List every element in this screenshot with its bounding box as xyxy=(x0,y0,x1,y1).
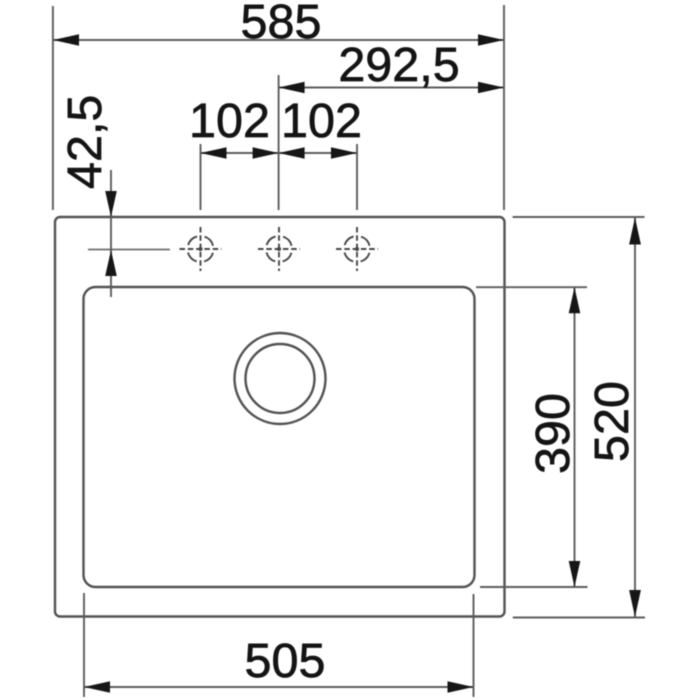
svg-text:292,5: 292,5 xyxy=(338,38,459,92)
svg-text:505: 505 xyxy=(245,634,326,688)
svg-text:42,5: 42,5 xyxy=(58,95,112,189)
svg-text:102: 102 xyxy=(189,94,270,148)
svg-text:585: 585 xyxy=(241,0,322,49)
svg-text:102: 102 xyxy=(281,94,362,148)
svg-text:390: 390 xyxy=(526,393,580,474)
svg-text:520: 520 xyxy=(585,381,639,462)
